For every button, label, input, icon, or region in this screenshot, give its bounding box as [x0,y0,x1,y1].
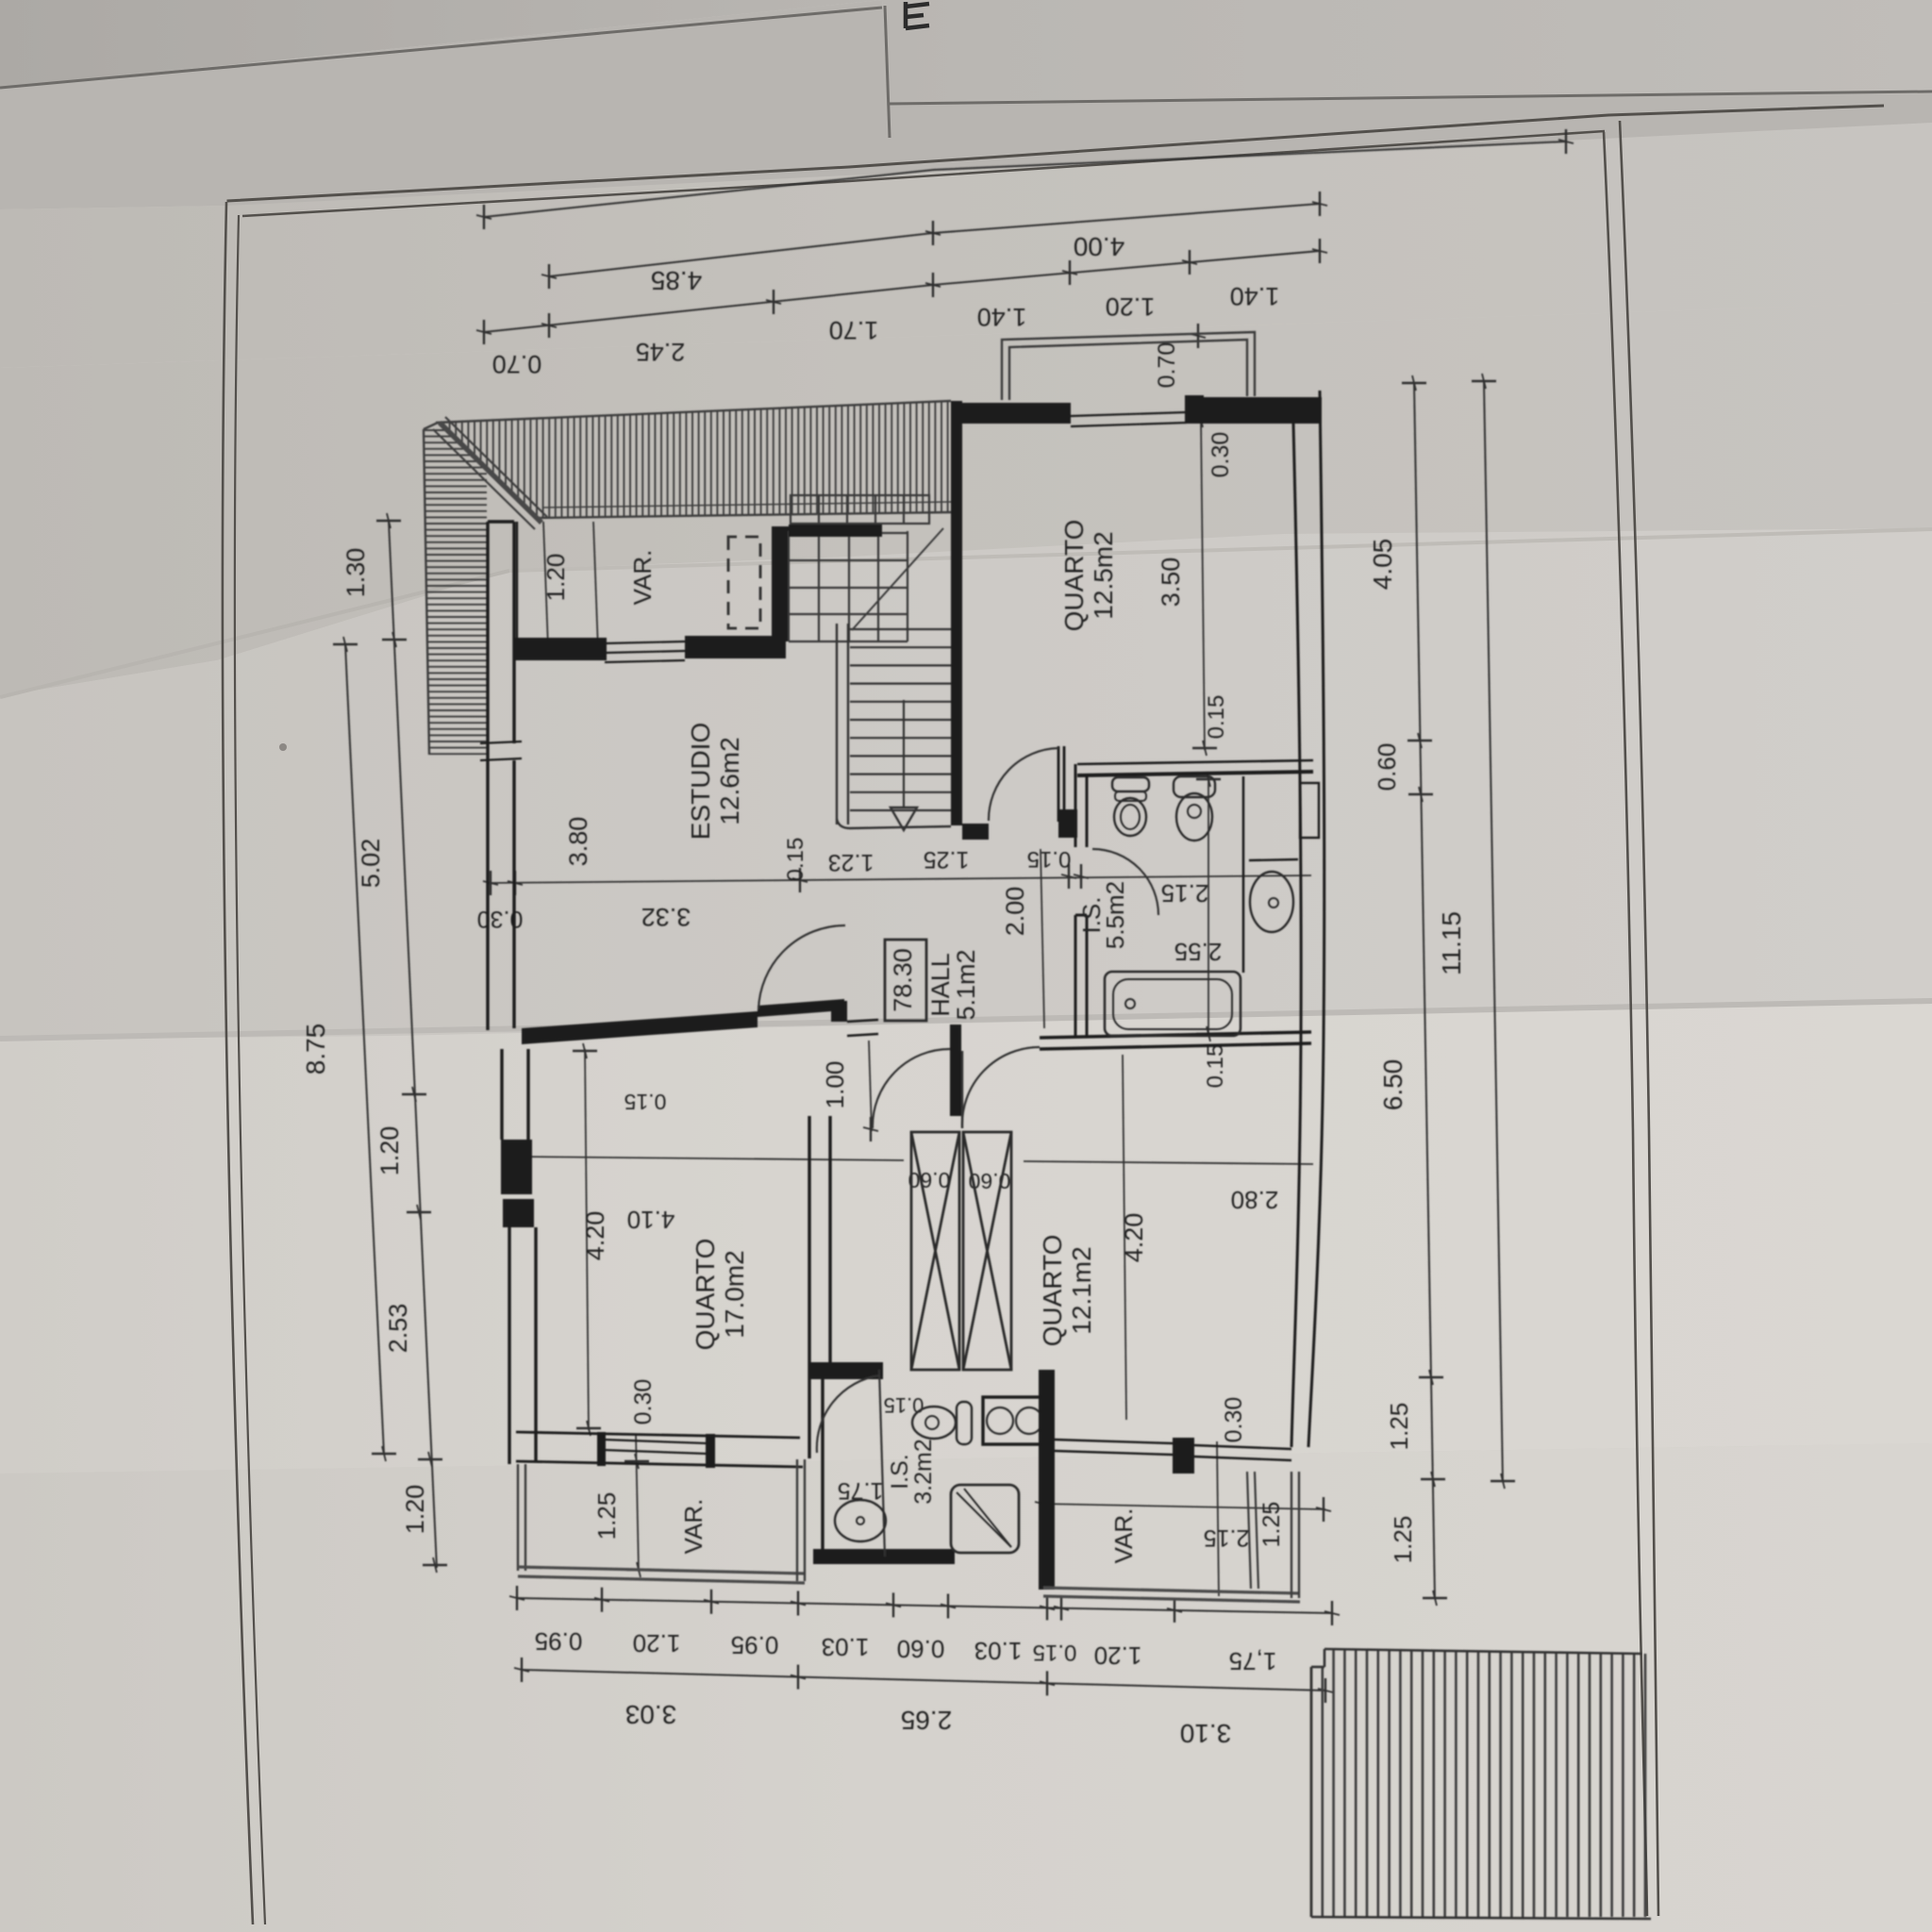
svg-text:I.S.: I.S. [887,1454,913,1490]
svg-text:VAR.: VAR. [679,1499,708,1555]
svg-text:1.30: 1.30 [341,548,370,598]
svg-text:1.23: 1.23 [828,849,874,875]
svg-text:ESTUDIO: ESTUDIO [686,723,715,840]
svg-text:1.20: 1.20 [401,1485,429,1535]
svg-text:QUARTO: QUARTO [691,1239,720,1351]
svg-text:0.60: 0.60 [908,1168,951,1192]
svg-text:12.6m2: 12.6m2 [715,737,744,824]
svg-text:4.85: 4.85 [651,266,703,295]
svg-text:5.02: 5.02 [357,839,385,889]
svg-text:2.45: 2.45 [636,338,686,366]
svg-text:5.1m2: 5.1m2 [952,949,980,1020]
svg-text:1.03: 1.03 [822,1633,870,1661]
svg-text:0.70: 0.70 [492,350,542,378]
svg-text:4.10: 4.10 [627,1206,675,1234]
svg-text:0.15: 0.15 [783,838,808,882]
svg-text:2.80: 2.80 [1231,1186,1279,1214]
svg-text:2.00: 2.00 [1001,887,1029,937]
svg-text:0.15: 0.15 [1027,846,1072,872]
svg-text:1,75: 1,75 [1229,1647,1277,1675]
svg-text:0.30: 0.30 [630,1379,657,1425]
svg-text:1.20: 1.20 [375,1126,404,1176]
svg-text:0.15: 0.15 [884,1393,924,1417]
svg-text:1.70: 1.70 [829,316,879,344]
svg-text:QUARTO: QUARTO [1038,1235,1067,1347]
svg-text:1.40: 1.40 [1230,282,1280,310]
svg-text:1.03: 1.03 [974,1637,1023,1665]
svg-text:12.5m2: 12.5m2 [1089,531,1118,619]
svg-text:8.75: 8.75 [301,1024,330,1075]
svg-text:0.15: 0.15 [1203,1044,1228,1089]
svg-text:11.15: 11.15 [1437,911,1466,975]
svg-text:2.55: 2.55 [1174,938,1223,966]
svg-text:QUARTO: QUARTO [1059,520,1089,632]
svg-text:1.25: 1.25 [924,846,970,873]
svg-text:1.20: 1.20 [1106,292,1156,321]
svg-text:5.5m2: 5.5m2 [1101,881,1129,949]
svg-text:4.00: 4.00 [1074,232,1125,261]
svg-text:6.50: 6.50 [1378,1059,1407,1111]
svg-text:HALL: HALL [926,953,955,1017]
svg-text:1.25: 1.25 [1385,1403,1413,1451]
svg-text:0.95: 0.95 [535,1627,583,1656]
svg-text:0.30: 0.30 [1207,432,1234,478]
svg-text:1.20: 1.20 [633,1629,681,1657]
svg-text:2.15: 2.15 [1204,1524,1250,1551]
svg-text:0.15: 0.15 [625,1090,667,1114]
svg-text:0.30: 0.30 [477,906,524,932]
svg-text:1.25: 1.25 [1389,1516,1417,1564]
svg-text:17.0m2: 17.0m2 [720,1250,749,1338]
svg-text:2.53: 2.53 [384,1304,412,1354]
svg-text:4.05: 4.05 [1368,539,1397,591]
svg-text:1.20: 1.20 [1094,1641,1142,1670]
svg-text:2.15: 2.15 [1161,879,1209,908]
svg-text:0.60: 0.60 [1373,743,1401,791]
svg-text:0.30: 0.30 [1221,1397,1247,1443]
svg-text:1.25: 1.25 [592,1492,621,1541]
svg-text:3.50: 3.50 [1157,558,1185,608]
svg-text:0.15: 0.15 [1204,695,1229,740]
svg-text:4.20: 4.20 [581,1211,609,1261]
svg-text:4.20: 4.20 [1120,1213,1148,1263]
svg-text:0.70: 0.70 [1154,342,1180,389]
svg-text:0.95: 0.95 [731,1631,779,1659]
svg-text:12.1m2: 12.1m2 [1067,1246,1096,1334]
svg-text:3.80: 3.80 [564,817,592,867]
svg-text:1.25: 1.25 [1258,1502,1285,1548]
svg-text:VAR.: VAR. [1109,1508,1138,1564]
svg-text:3.32: 3.32 [641,903,691,931]
svg-text:3.2m2: 3.2m2 [910,1439,937,1504]
svg-text:1.40: 1.40 [977,303,1027,331]
svg-text:3.10: 3.10 [1180,1719,1232,1748]
svg-text:1.00: 1.00 [821,1061,849,1109]
svg-text:78.30: 78.30 [889,948,917,1012]
svg-text:0.15: 0.15 [1033,1640,1077,1665]
svg-text:VAR.: VAR. [628,550,657,606]
svg-text:0.60: 0.60 [897,1635,945,1663]
svg-text:2.65: 2.65 [901,1706,953,1735]
svg-text:3.03: 3.03 [625,1700,677,1729]
